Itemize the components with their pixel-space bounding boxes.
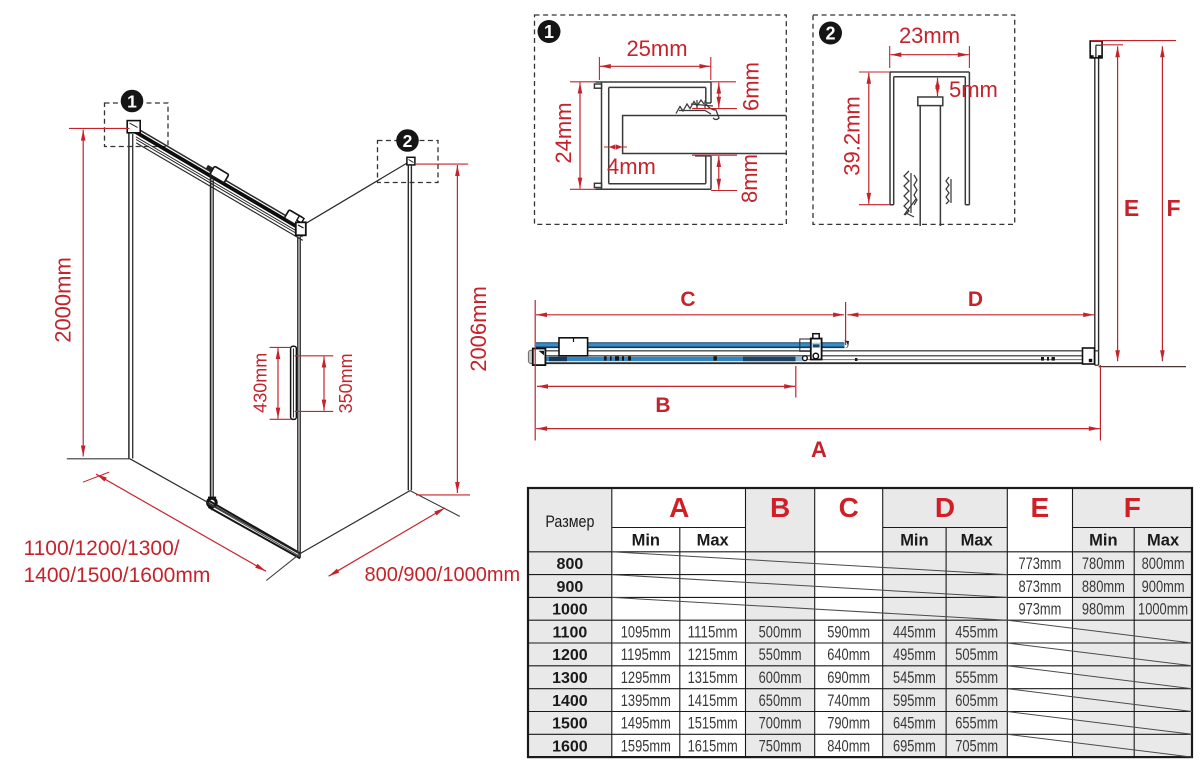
- svg-text:550mm: 550mm: [759, 646, 802, 664]
- svg-text:873mm: 873mm: [1018, 578, 1061, 596]
- svg-text:695mm: 695mm: [893, 738, 936, 756]
- svg-text:Max: Max: [1147, 532, 1180, 550]
- svg-text:A: A: [669, 492, 689, 523]
- svg-text:1615mm: 1615mm: [688, 738, 738, 756]
- svg-text:23mm: 23mm: [899, 23, 960, 48]
- svg-text:1315mm: 1315mm: [688, 669, 738, 687]
- svg-text:1195mm: 1195mm: [621, 646, 671, 664]
- svg-text:5mm: 5mm: [949, 77, 998, 102]
- svg-text:C: C: [680, 288, 695, 311]
- svg-text:1100/1200/1300/: 1100/1200/1300/: [24, 537, 180, 560]
- svg-text:2: 2: [825, 24, 835, 44]
- svg-text:Max: Max: [961, 532, 994, 550]
- svg-text:555mm: 555mm: [955, 669, 998, 687]
- svg-text:4mm: 4mm: [607, 154, 656, 179]
- svg-text:1215mm: 1215mm: [688, 646, 738, 664]
- svg-text:Min: Min: [632, 532, 660, 550]
- svg-text:605mm: 605mm: [955, 692, 998, 710]
- svg-text:650mm: 650mm: [759, 692, 802, 710]
- svg-text:790mm: 790mm: [827, 715, 870, 733]
- svg-text:430mm: 430mm: [250, 353, 270, 413]
- svg-text:8mm: 8mm: [737, 154, 762, 203]
- svg-text:B: B: [655, 394, 670, 417]
- svg-text:1200: 1200: [552, 647, 588, 664]
- svg-text:1595mm: 1595mm: [621, 738, 671, 756]
- svg-text:1: 1: [127, 91, 137, 111]
- svg-text:D: D: [935, 492, 955, 523]
- svg-text:773mm: 773mm: [1018, 555, 1061, 573]
- svg-text:1100: 1100: [553, 624, 588, 641]
- svg-text:2000mm: 2000mm: [51, 257, 76, 343]
- svg-text:6mm: 6mm: [739, 62, 764, 111]
- svg-text:980mm: 980mm: [1082, 601, 1125, 619]
- svg-text:590mm: 590mm: [827, 623, 870, 641]
- svg-text:800/900/1000mm: 800/900/1000mm: [365, 564, 521, 586]
- svg-text:A: A: [811, 437, 827, 462]
- svg-text:C: C: [839, 492, 859, 523]
- svg-text:1495mm: 1495mm: [621, 715, 671, 733]
- svg-text:700mm: 700mm: [759, 715, 802, 733]
- svg-text:E: E: [1124, 195, 1139, 221]
- svg-text:1000: 1000: [552, 602, 588, 619]
- svg-text:900mm: 900mm: [1142, 578, 1185, 596]
- svg-text:24mm: 24mm: [551, 102, 576, 163]
- svg-text:840mm: 840mm: [827, 738, 870, 756]
- svg-text:505mm: 505mm: [955, 646, 998, 664]
- svg-text:1400: 1400: [552, 693, 588, 710]
- svg-text:1400/1500/1600mm: 1400/1500/1600mm: [24, 564, 211, 587]
- svg-text:F: F: [1124, 492, 1141, 523]
- svg-text:545mm: 545mm: [893, 669, 936, 687]
- svg-text:E: E: [1031, 492, 1050, 523]
- svg-text:39.2mm: 39.2mm: [840, 96, 865, 175]
- svg-text:B: B: [770, 492, 790, 523]
- svg-text:1395mm: 1395mm: [621, 692, 671, 710]
- svg-text:D: D: [968, 288, 983, 311]
- svg-text:1500: 1500: [552, 716, 588, 733]
- svg-text:800: 800: [557, 556, 584, 573]
- svg-text:445mm: 445mm: [893, 623, 936, 641]
- svg-text:1300: 1300: [552, 670, 588, 687]
- svg-text:900: 900: [557, 579, 584, 596]
- svg-text:1115mm: 1115mm: [688, 623, 738, 641]
- svg-text:1095mm: 1095mm: [621, 623, 671, 641]
- svg-text:Max: Max: [697, 532, 730, 550]
- svg-text:655mm: 655mm: [955, 715, 998, 733]
- svg-text:600mm: 600mm: [759, 669, 802, 687]
- svg-text:1: 1: [544, 22, 554, 42]
- svg-text:800mm: 800mm: [1142, 555, 1185, 573]
- svg-text:880mm: 880mm: [1082, 578, 1125, 596]
- svg-text:350mm: 350mm: [336, 353, 356, 413]
- svg-text:595mm: 595mm: [893, 692, 936, 710]
- svg-text:640mm: 640mm: [827, 646, 870, 664]
- svg-text:2006mm: 2006mm: [466, 286, 491, 372]
- svg-text:1000mm: 1000mm: [1138, 601, 1188, 619]
- svg-text:495mm: 495mm: [893, 646, 936, 664]
- svg-text:455mm: 455mm: [955, 623, 998, 641]
- svg-text:740mm: 740mm: [827, 692, 870, 710]
- svg-text:F: F: [1166, 195, 1180, 221]
- svg-text:645mm: 645mm: [893, 715, 936, 733]
- svg-text:1415mm: 1415mm: [688, 692, 738, 710]
- svg-text:Размер: Размер: [545, 512, 594, 531]
- svg-text:Min: Min: [900, 532, 928, 550]
- svg-text:25mm: 25mm: [626, 36, 687, 61]
- svg-text:973mm: 973mm: [1018, 601, 1061, 619]
- svg-text:1600: 1600: [552, 739, 588, 756]
- svg-text:500mm: 500mm: [759, 623, 802, 641]
- svg-text:Min: Min: [1089, 532, 1117, 550]
- svg-text:780mm: 780mm: [1082, 555, 1125, 573]
- svg-text:690mm: 690mm: [827, 669, 870, 687]
- svg-text:1295mm: 1295mm: [621, 669, 671, 687]
- svg-text:2: 2: [403, 131, 413, 151]
- svg-text:705mm: 705mm: [955, 738, 998, 756]
- svg-text:1515mm: 1515mm: [688, 715, 738, 733]
- svg-text:750mm: 750mm: [759, 738, 802, 756]
